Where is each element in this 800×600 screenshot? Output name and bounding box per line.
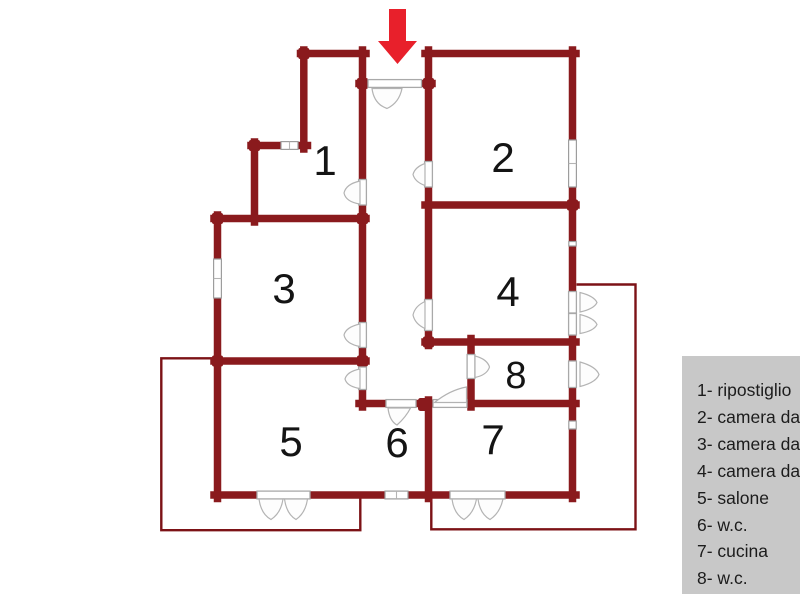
legend-item: 2- camera da letto bbox=[697, 404, 800, 431]
door-swing-icon bbox=[580, 362, 599, 387]
room-number-label-7: 7 bbox=[481, 419, 504, 461]
legend-item: 4- camera da letto bbox=[697, 458, 800, 485]
door-swing-icon bbox=[372, 89, 402, 109]
entrance-door-leaf bbox=[368, 80, 422, 88]
room-number-label-8: 8 bbox=[505, 357, 526, 395]
door-swing-icon bbox=[478, 499, 503, 520]
french-door-leaf bbox=[450, 491, 505, 499]
door-swing-icon bbox=[580, 293, 597, 313]
door-swing-icon bbox=[344, 324, 360, 347]
door-swing-icon bbox=[345, 369, 360, 389]
legend-item: 8- w.c. bbox=[697, 565, 800, 592]
room-number-label-4: 4 bbox=[496, 271, 519, 313]
door-leaf bbox=[467, 355, 475, 379]
legend-item: 3- camera da letto bbox=[697, 431, 800, 458]
floor-plan-page: 1 2 3 4 5 6 7 8 1- ripostiglio 2- camera… bbox=[0, 0, 800, 600]
door-swing-icon bbox=[452, 499, 477, 520]
entrance-arrow-icon bbox=[378, 9, 417, 64]
balcony-door-leaf bbox=[569, 292, 577, 314]
door-swing-icon bbox=[580, 315, 597, 334]
legend-item: 1- ripostiglio bbox=[697, 377, 800, 404]
legend-item: 7- cucina bbox=[697, 538, 800, 565]
door-swing-icon bbox=[344, 181, 360, 204]
legend: 1- ripostiglio 2- camera da letto 3- cam… bbox=[682, 356, 800, 594]
wall-break bbox=[569, 242, 576, 247]
floor-plan-drawing bbox=[0, 0, 800, 600]
door-swing-icon bbox=[259, 499, 283, 520]
balcony-door-leaf bbox=[569, 314, 577, 336]
wall-break bbox=[569, 421, 576, 429]
room-number-label-1: 1 bbox=[313, 140, 336, 182]
door-leaf bbox=[425, 162, 433, 188]
door-swing-icon bbox=[413, 302, 425, 329]
door-swing-icon bbox=[285, 499, 308, 520]
door-swing-icon bbox=[413, 164, 425, 186]
door-swing-icon bbox=[435, 387, 467, 403]
french-door-leaf bbox=[257, 491, 310, 499]
room-number-label-2: 2 bbox=[491, 137, 514, 179]
room-number-label-3: 3 bbox=[272, 268, 295, 310]
legend-item: 6- w.c. bbox=[697, 512, 800, 539]
room-number-label-5: 5 bbox=[279, 421, 302, 463]
room-number-label-6: 6 bbox=[385, 422, 408, 464]
door-leaf bbox=[425, 300, 433, 331]
door-leaf bbox=[386, 400, 416, 408]
door-swing-icon bbox=[475, 356, 490, 378]
legend-item: 5- salone bbox=[697, 485, 800, 512]
balcony-door-leaf bbox=[569, 361, 577, 388]
